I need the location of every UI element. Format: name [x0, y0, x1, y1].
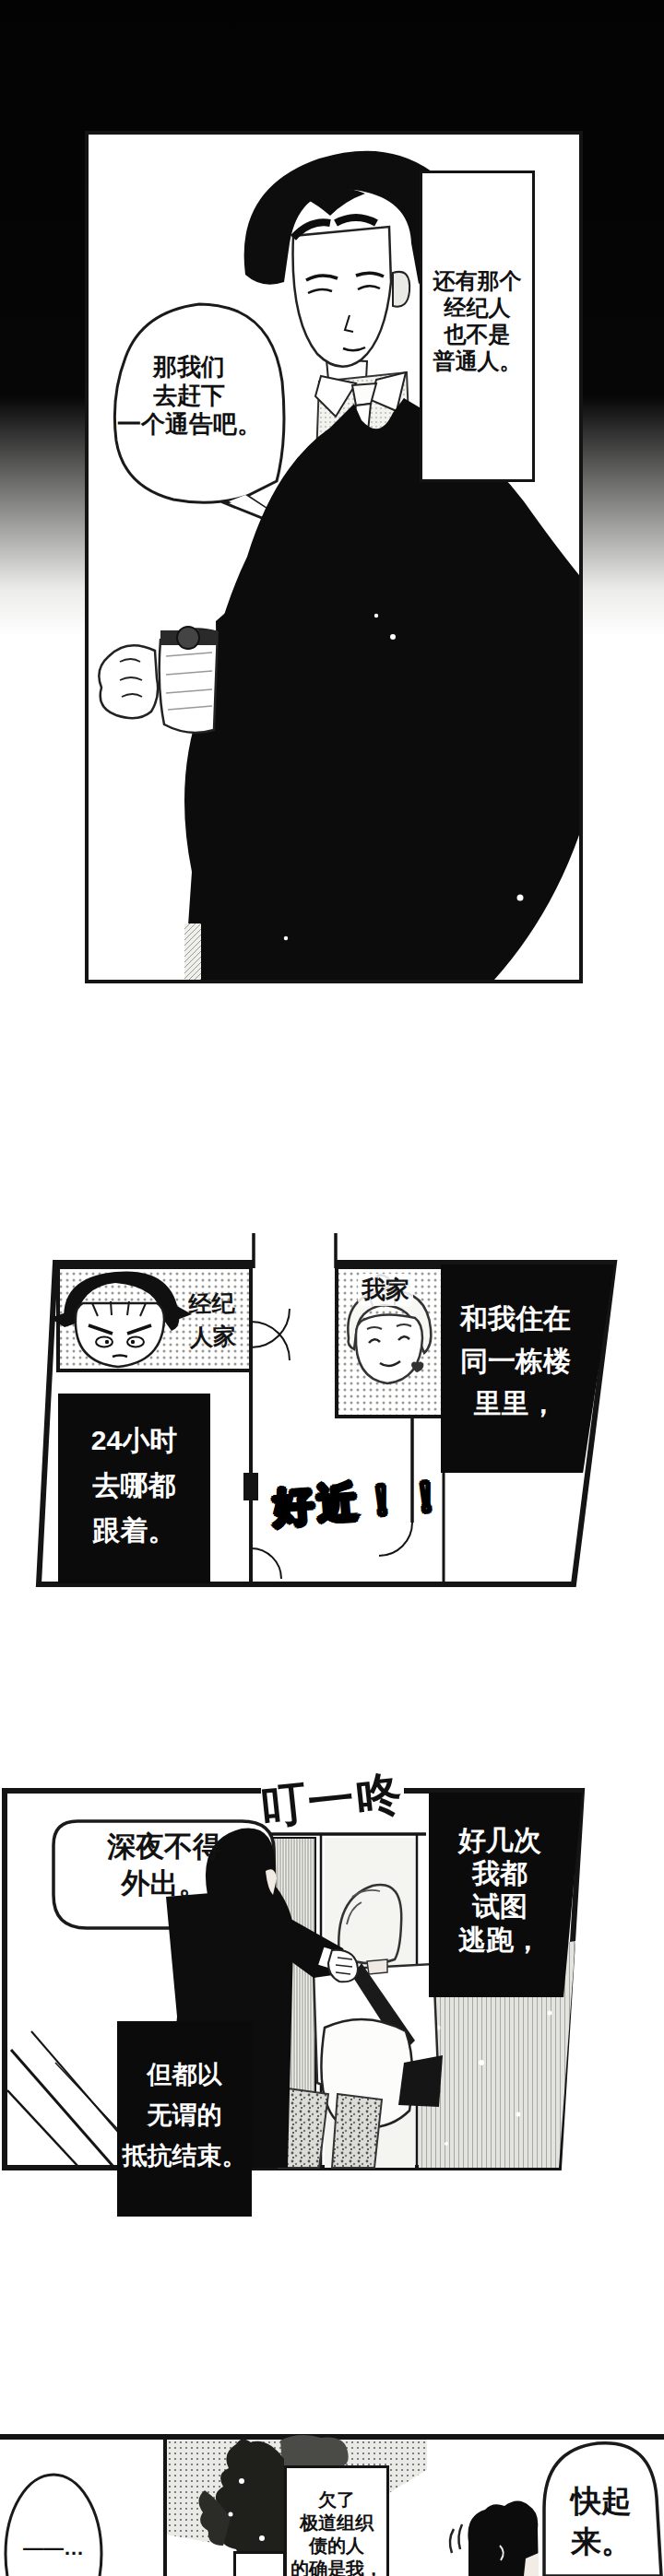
- caption-line: 24小时: [58, 1417, 210, 1463]
- caption-line: 无谓的: [117, 2095, 252, 2135]
- label-line: 经纪: [178, 1286, 245, 1321]
- caption-line: 我都: [431, 1857, 569, 1890]
- panel4-dash-bubble-text: ——…: [13, 2536, 94, 2560]
- caption-line: 但都以: [117, 2054, 252, 2095]
- dash-bubble-shape: [6, 2475, 101, 2576]
- panel1-caption-box: 还有那个 经纪人 也不是 普通人。: [420, 171, 535, 482]
- man-head: [450, 2501, 539, 2576]
- caption-line: 经纪人: [422, 294, 532, 321]
- caption-line: 的确是我，: [287, 2558, 386, 2576]
- caption-line: 也不是: [422, 321, 532, 347]
- caption-line: 极道组织: [287, 2511, 386, 2535]
- caption-line: 普通人。: [422, 347, 532, 374]
- bubble-line: 那我们: [88, 353, 290, 382]
- bubble-line: 一个通告吧。: [88, 410, 290, 439]
- caption-line: 好几次: [431, 1824, 569, 1857]
- panel4-caption-debt: 欠了 极道组织 债的人 的确是我，: [284, 2465, 389, 2576]
- caption-line: 里里，: [445, 1382, 587, 1425]
- motion-marks: [450, 2524, 462, 2553]
- caption-line: 逃跑，: [431, 1923, 569, 1957]
- caption-line: 抵抗结束。: [117, 2135, 252, 2176]
- bubble-line: 深夜不得: [61, 1829, 267, 1865]
- panel1-speech-bubble-text: 那我们 去赶下 一个通告吧。: [88, 353, 290, 439]
- caption-line: 跟着。: [58, 1508, 210, 1553]
- caption-line: 同一栋楼: [445, 1340, 587, 1382]
- caption-line: 欠了: [287, 2488, 386, 2511]
- panel4-getup-bubble-text: 快起 来。: [555, 2481, 647, 2562]
- caption-line: 去哪都: [58, 1463, 210, 1508]
- my-home-label: 我家: [358, 1274, 413, 1306]
- manager-home-label: 经纪 人家: [178, 1286, 246, 1354]
- caption-line: 债的人: [287, 2535, 386, 2558]
- caption-line: 还有那个: [422, 267, 532, 294]
- caption-line: 试图: [431, 1890, 569, 1923]
- panel3-caption-resist: 但都以 无谓的 抵抗结束。: [117, 2021, 252, 2217]
- panel4-white-step: [233, 2551, 286, 2576]
- label-line: 人家: [179, 1319, 246, 1354]
- bubble-line: 去赶下: [88, 382, 290, 410]
- panel2-caption-follow: 24小时 去哪都 跟着。: [58, 1394, 210, 1583]
- bubble-line: 来。: [555, 2522, 647, 2562]
- bubble-line: 外出。: [61, 1865, 267, 1902]
- panel3-speech-bubble-text: 深夜不得 外出。: [61, 1829, 267, 1902]
- caption-line: 和我住在: [445, 1298, 587, 1340]
- panel3-caption-escape: 好几次 我都 试图 逃跑，: [429, 1793, 582, 1997]
- bubble-line: 快起: [555, 2481, 647, 2522]
- manga-page: 还有那个 经纪人 也不是 普通人。 那我们 去赶下 一个通告吧。: [0, 0, 664, 2576]
